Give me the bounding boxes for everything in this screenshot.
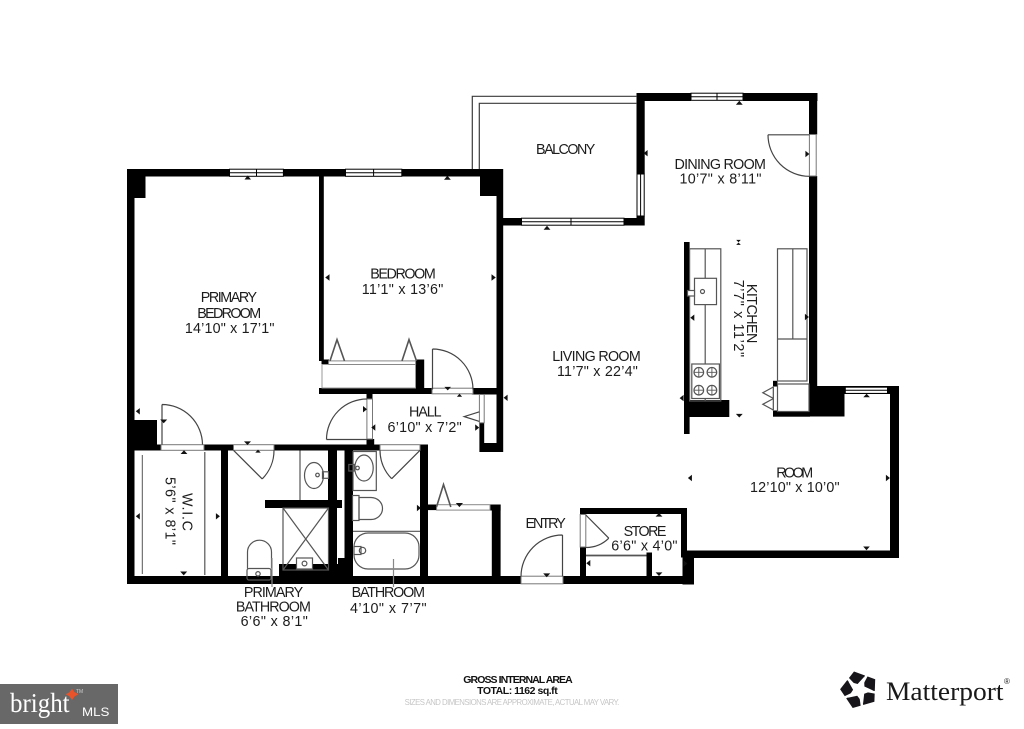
svg-text:11’7" x 22’4": 11’7" x 22’4": [557, 364, 638, 380]
svg-text:BEDROOM: BEDROOM: [197, 306, 261, 322]
svg-text:6’10" x 7’2": 6’10" x 7’2": [388, 420, 462, 436]
svg-text:7’7" x 11’2": 7’7" x 11’2": [730, 280, 746, 357]
svg-text:4’10" x 7’7": 4’10" x 7’7": [350, 601, 427, 617]
svg-text:10’7" x 8’11": 10’7" x 8’11": [680, 172, 762, 188]
svg-text:BALCONY: BALCONY: [536, 142, 596, 158]
svg-text:6’6" x 8’1": 6’6" x 8’1": [241, 614, 308, 630]
svg-text:bright: bright: [10, 688, 70, 718]
svg-text:TOTAL: 1162 sq.ft: TOTAL: 1162 sq.ft: [477, 685, 558, 697]
svg-text:W.I.C: W.I.C: [179, 493, 195, 531]
svg-text:14’10" x 17’1": 14’10" x 17’1": [185, 321, 275, 337]
svg-text:BEDROOM: BEDROOM: [370, 267, 436, 283]
svg-text:Matterport: Matterport: [886, 676, 1004, 706]
svg-text:BATHROOM: BATHROOM: [352, 585, 425, 601]
svg-text:SIZES AND DIMENSIONS ARE APPRO: SIZES AND DIMENSIONS ARE APPROXIMATE, AC…: [405, 698, 620, 707]
svg-text:12’10" x 10’0": 12’10" x 10’0": [750, 480, 840, 496]
svg-text:TM: TM: [76, 689, 83, 695]
svg-text:HALL: HALL: [409, 404, 442, 420]
svg-text:MLS: MLS: [82, 707, 110, 719]
svg-text:®: ®: [1004, 677, 1010, 686]
svg-text:LIVING ROOM: LIVING ROOM: [552, 349, 641, 365]
svg-text:6’6" x 4’0": 6’6" x 4’0": [611, 539, 677, 555]
svg-text:11’1" x 13’6": 11’1" x 13’6": [362, 282, 444, 298]
svg-text:5’6" x 8’1": 5’6" x 8’1": [162, 477, 178, 545]
svg-text:PRIMARY: PRIMARY: [201, 290, 258, 306]
svg-text:ENTRY: ENTRY: [525, 516, 566, 532]
